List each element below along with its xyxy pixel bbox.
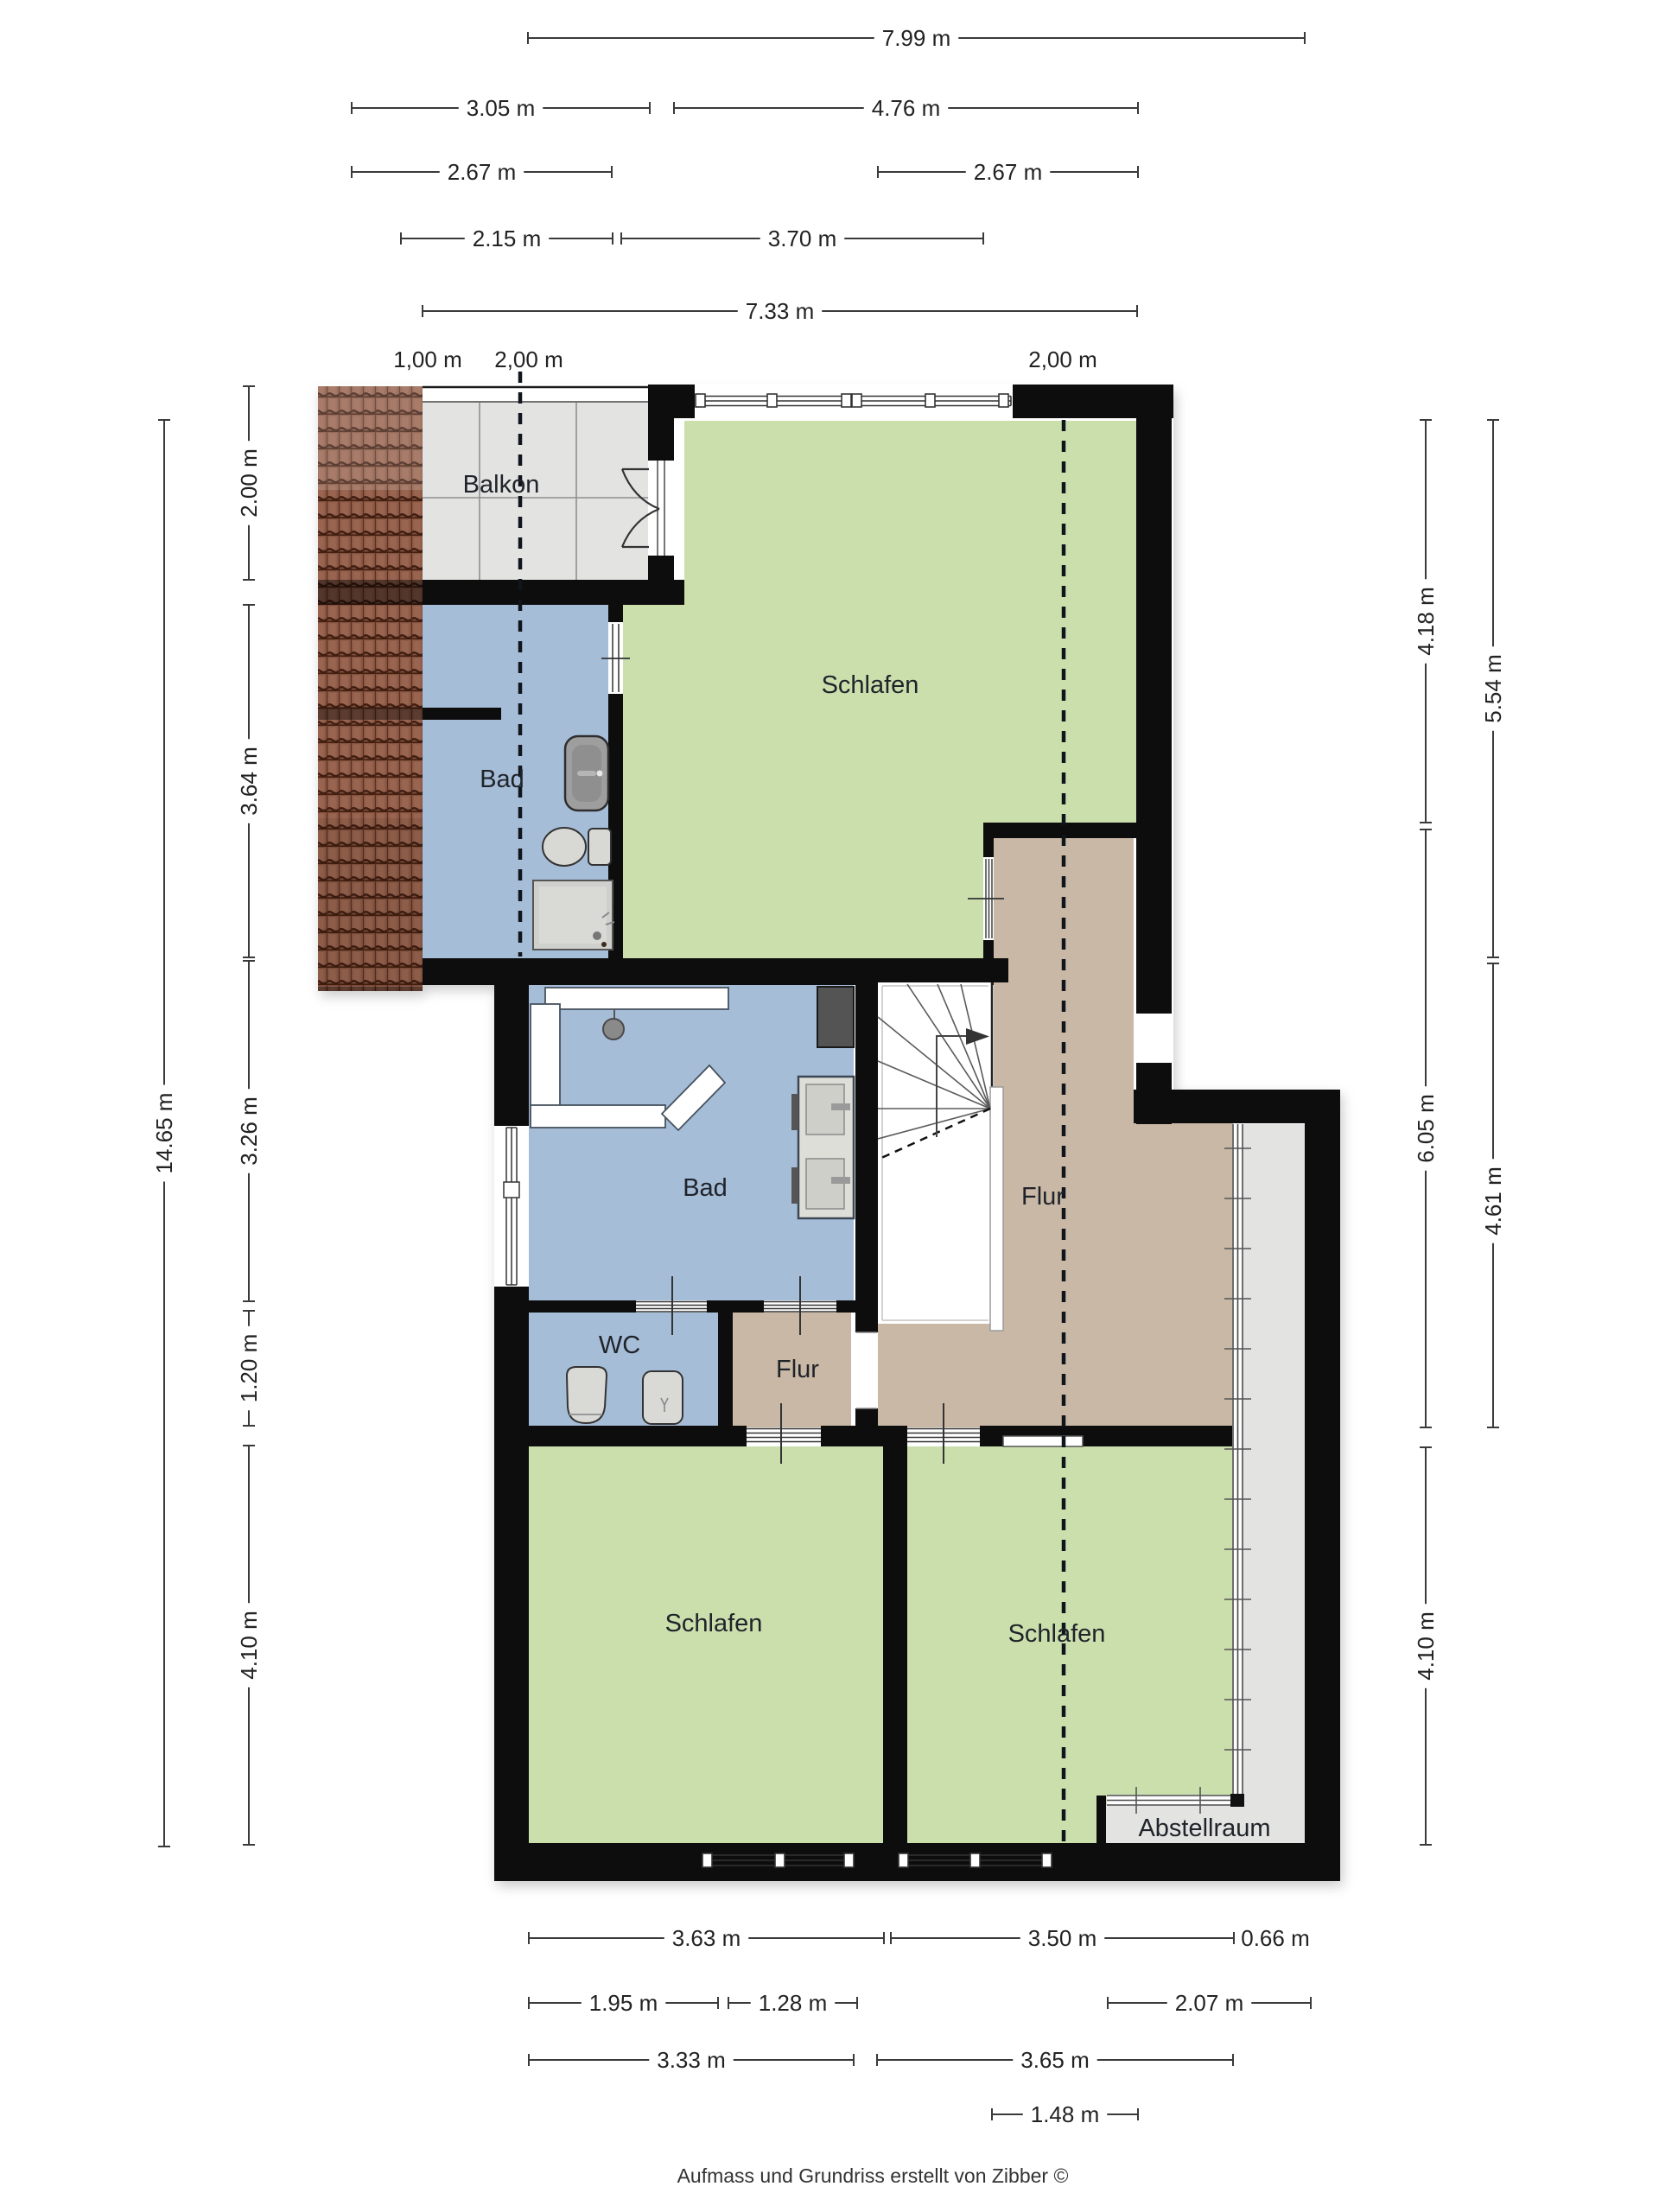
- svg-text:4.18 m: 4.18 m: [1413, 587, 1439, 656]
- svg-text:Bad: Bad: [683, 1174, 728, 1202]
- svg-text:6.05 m: 6.05 m: [1413, 1094, 1439, 1163]
- svg-text:1.48 m: 1.48 m: [1031, 2101, 1100, 2127]
- svg-text:Schlafen: Schlafen: [665, 1610, 763, 1637]
- svg-text:14.65 m: 14.65 m: [151, 1093, 177, 1174]
- svg-text:Bad: Bad: [480, 766, 524, 793]
- svg-text:Flur: Flur: [1021, 1183, 1065, 1211]
- svg-text:4.61 m: 4.61 m: [1480, 1166, 1506, 1236]
- svg-text:Aufmass und Grundriss erstellt: Aufmass und Grundriss erstellt von Zibbe…: [677, 2164, 1069, 2187]
- svg-text:2,00 m: 2,00 m: [1028, 346, 1097, 372]
- svg-text:Flur: Flur: [776, 1356, 819, 1383]
- svg-text:3.63 m: 3.63 m: [672, 1925, 741, 1951]
- svg-text:2,00 m: 2,00 m: [494, 346, 563, 372]
- svg-text:0.66 m: 0.66 m: [1241, 1925, 1310, 1951]
- svg-text:4.76 m: 4.76 m: [872, 95, 941, 121]
- svg-text:2.00 m: 2.00 m: [236, 448, 262, 518]
- svg-text:2.67 m: 2.67 m: [974, 159, 1043, 185]
- svg-text:1.20 m: 1.20 m: [236, 1334, 262, 1403]
- svg-text:2.67 m: 2.67 m: [448, 159, 517, 185]
- svg-text:1,00 m: 1,00 m: [393, 346, 462, 372]
- svg-text:4.10 m: 4.10 m: [1413, 1611, 1439, 1681]
- svg-text:3.70 m: 3.70 m: [768, 226, 837, 251]
- svg-text:2.07 m: 2.07 m: [1175, 1990, 1244, 2016]
- svg-text:3.33 m: 3.33 m: [657, 2047, 726, 2073]
- svg-text:1.95 m: 1.95 m: [589, 1990, 658, 2016]
- svg-text:Schlafen: Schlafen: [1008, 1620, 1106, 1648]
- svg-text:3.05 m: 3.05 m: [467, 95, 536, 121]
- svg-text:4.10 m: 4.10 m: [236, 1611, 262, 1680]
- svg-text:3.26 m: 3.26 m: [236, 1096, 262, 1166]
- svg-text:7.33 m: 7.33 m: [746, 298, 815, 324]
- svg-text:WC: WC: [599, 1332, 640, 1359]
- svg-text:3.50 m: 3.50 m: [1028, 1925, 1097, 1951]
- svg-text:Schlafen: Schlafen: [822, 671, 919, 699]
- svg-text:5.54 m: 5.54 m: [1480, 654, 1506, 723]
- svg-text:Balkon: Balkon: [463, 471, 540, 499]
- svg-text:Abstellraum: Abstellraum: [1138, 1815, 1270, 1842]
- svg-text:1.28 m: 1.28 m: [759, 1990, 828, 2016]
- svg-text:3.65 m: 3.65 m: [1020, 2047, 1090, 2073]
- svg-text:3.64 m: 3.64 m: [236, 747, 262, 816]
- svg-text:7.99 m: 7.99 m: [882, 25, 951, 51]
- svg-text:2.15 m: 2.15 m: [473, 226, 542, 251]
